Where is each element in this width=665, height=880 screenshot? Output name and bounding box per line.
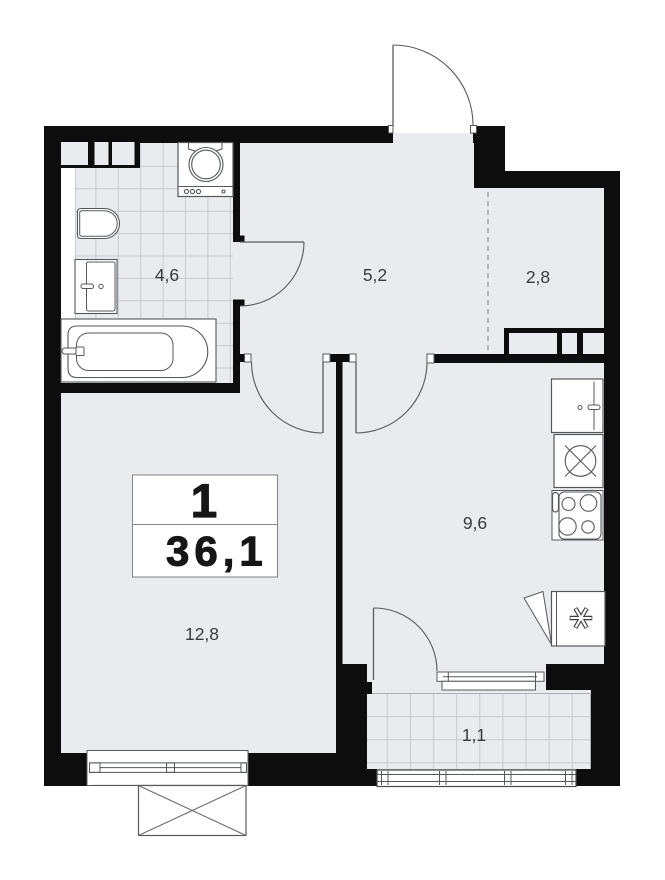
svg-text:12,8: 12,8	[185, 624, 219, 644]
svg-text:9,6: 9,6	[463, 513, 487, 533]
svg-text:1,1: 1,1	[462, 725, 486, 745]
svg-text:1: 1	[191, 475, 217, 528]
svg-text:4,6: 4,6	[155, 265, 179, 285]
svg-text:36,1: 36,1	[166, 528, 268, 575]
svg-text:2,8: 2,8	[526, 267, 550, 287]
svg-text:5,2: 5,2	[363, 265, 387, 285]
